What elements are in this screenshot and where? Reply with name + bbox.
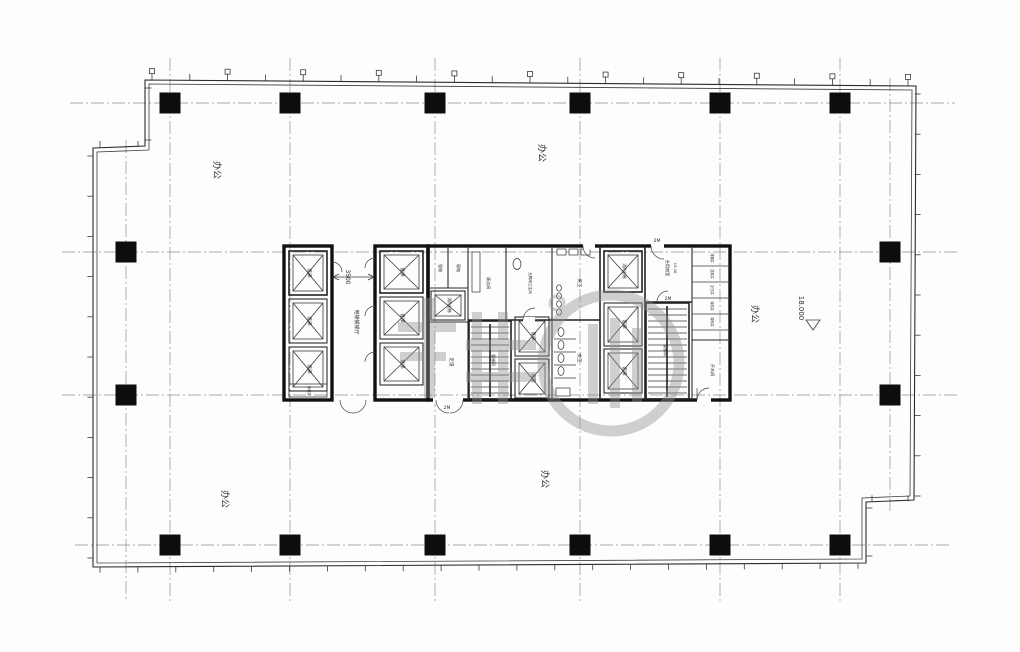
label-office-bottom-left: 办公: [219, 490, 231, 508]
dimension-lobby-width: 3500: [333, 269, 374, 284]
label-elevator-lobby: 电梯候梯厅: [353, 309, 360, 334]
label-shared-front-room-area: 15.46: [673, 263, 678, 274]
label-water-room: 开水间: [709, 364, 716, 377]
doors: [332, 243, 711, 413]
label-shaft-1: 排烟井: [710, 253, 715, 263]
door-mark-3: 2M: [665, 296, 672, 302]
label-mens-wc: 男卫: [576, 279, 582, 288]
label-accessible-wc: 无障碍卫生间: [528, 272, 533, 294]
label-shaft-3: 正压井: [710, 285, 715, 295]
label-tank-room: 水暖井: [307, 386, 312, 397]
floor-plan-drawing: 3500 办公 办公 办公 办公 办公 电梯候梯厅 客梯 客梯 客梯 客梯 客梯…: [0, 0, 1020, 652]
elevation-value: 18.000: [797, 296, 805, 321]
label-stair-1: 楼梯间: [491, 354, 496, 366]
floor-plan-canvas: 3500 办公 办公 办公 办公 办公 电梯候梯厅 客梯 客梯 客梯 客梯 客梯…: [0, 0, 1020, 652]
label-office-right: 办公: [749, 305, 761, 323]
elevation-triangle-icon: [806, 320, 820, 330]
label-shaft-5: 弱电井: [710, 317, 715, 327]
watermark-logo: [398, 295, 679, 431]
label-shared-front-room: 合用前室: [664, 260, 671, 277]
column-grid-lines: [62, 58, 958, 602]
label-office-bottom-center: 办公: [539, 470, 551, 488]
label-office-top-center: 办公: [536, 144, 548, 162]
elevation-marker: 18.000: [797, 296, 820, 330]
label-fire-lift-1: 消防电梯: [447, 297, 452, 312]
label-shaft-4: 强电井: [710, 301, 715, 311]
label-corridor: 走道: [448, 358, 455, 367]
label-cleaning-room: 清洁间: [485, 277, 492, 290]
label-lift-7: 客梯: [530, 332, 537, 341]
label-stair-2: 楼梯间: [663, 344, 668, 356]
accessible-wc-toilet: [513, 259, 521, 270]
label-lift-5: 客梯: [399, 314, 406, 323]
door-mark-1: 2M: [444, 405, 451, 411]
label-lift-4: 客梯: [399, 268, 406, 277]
label-fire-lift-2: 消防电梯: [622, 263, 627, 278]
room-labels: 办公 办公 办公 办公 办公 电梯候梯厅 客梯 客梯 客梯 客梯 客梯 客梯 客…: [211, 144, 761, 508]
label-weak-electric: 弱电: [456, 264, 462, 272]
label-lift-2: 客梯: [306, 317, 313, 326]
label-office-top-left: 办公: [211, 161, 223, 179]
label-lift-3: 客梯: [306, 365, 313, 374]
label-lift-10: 客梯: [621, 367, 628, 376]
label-shaft-2: 送风井: [710, 269, 715, 279]
label-lift-1: 客梯: [306, 269, 313, 278]
door-mark-2: 2M: [654, 238, 661, 244]
label-lift-9: 客梯: [621, 320, 628, 329]
dimension-value: 3500: [344, 269, 351, 284]
label-womens-wc: 女卫: [576, 354, 583, 363]
label-strong-electric: 强电: [438, 264, 444, 272]
cleaning-room-counter: [472, 252, 480, 292]
